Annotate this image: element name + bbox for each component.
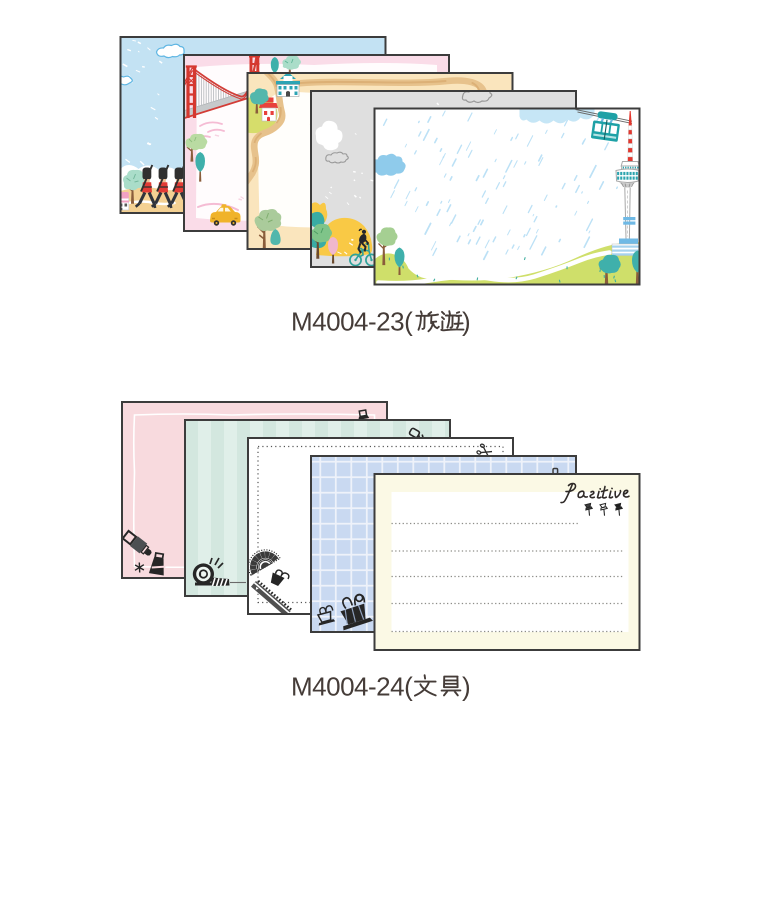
- svg-text:): ): [462, 307, 471, 337]
- svg-text:M4004-24(: M4004-24(: [291, 672, 413, 702]
- svg-text:M4004-23(: M4004-23(: [291, 307, 413, 337]
- svg-text:): ): [462, 672, 471, 702]
